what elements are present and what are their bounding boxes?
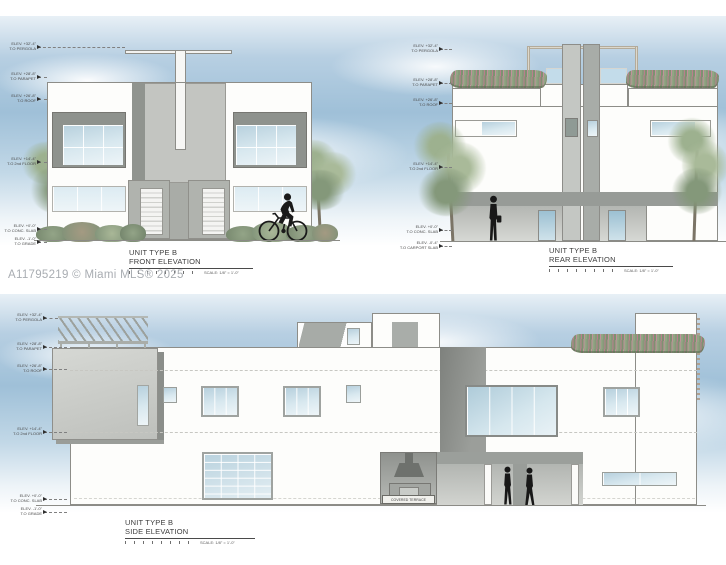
ground-line	[34, 240, 340, 241]
title-rule	[125, 538, 255, 539]
title-block: UNIT TYPE B SIDE ELEVATION SCALE: 1/8" =…	[125, 519, 255, 545]
drawing-title: REAR ELEVATION	[549, 256, 673, 265]
floor-guide-line	[70, 370, 697, 371]
window	[283, 386, 321, 417]
pylon-window	[565, 118, 578, 137]
window-mullions	[236, 125, 296, 165]
person-figure	[486, 195, 502, 243]
window	[603, 387, 640, 417]
ground-line	[36, 505, 706, 506]
leader-line	[44, 432, 67, 433]
marker-text: T.O PERGOLA	[2, 47, 36, 52]
marker-text: T.O 2nd FLOOR	[2, 162, 36, 167]
window-mullions	[204, 454, 271, 498]
elevation-marker: ELEV. +26'-8" T.O ROOF	[398, 98, 438, 108]
tree-foliage	[418, 168, 474, 216]
leader-line	[38, 99, 47, 100]
window-glass	[236, 125, 296, 165]
window	[455, 120, 517, 137]
elevation-marker: ELEV. +0'-0" T.O CONC. SLAB	[6, 494, 42, 504]
window-mullions	[203, 388, 237, 415]
marker-text: T.O 2nd FLOOR	[398, 167, 438, 172]
window-box	[233, 112, 307, 168]
elevation-marker: ELEV. +0'-0" T.O CONC. SLAB	[398, 225, 438, 235]
window-box	[52, 112, 126, 168]
leader-line	[440, 246, 452, 247]
person-figure	[501, 466, 514, 506]
cyclist-figure	[257, 188, 309, 244]
leader-line	[44, 499, 67, 500]
marker-text: T.O ROOF	[6, 369, 42, 374]
scale-ticks	[125, 541, 193, 544]
elevation-marker: ELEV. -1'-0" T.O GRADE	[6, 507, 42, 517]
marker-text: T.O PERGOLA	[6, 318, 42, 323]
elevation-marker: ELEV. +28'-8" T.O PARAPET	[6, 342, 42, 352]
marker-text: T.O ROOF	[398, 103, 438, 108]
glass-railing	[600, 68, 627, 84]
elevation-marker: ELEV. +0'-0" T.O CONC. SLAB	[2, 224, 36, 234]
leader-line	[440, 230, 452, 231]
clerestory-window	[347, 328, 360, 345]
elevation-marker: ELEV. -1'-0" T.O GRADE	[2, 237, 36, 247]
scale-label: SCALE: 1/8" = 1'-0"	[200, 540, 235, 545]
roof-planter-flowers	[626, 70, 719, 88]
entry-door	[538, 210, 556, 241]
pylon-window	[587, 120, 598, 137]
drawing-title: FRONT ELEVATION	[129, 258, 253, 267]
kitchen-hood	[394, 463, 424, 477]
scale-label: SCALE: 1/8" = 1'-0"	[204, 270, 239, 275]
window-mullions	[467, 387, 556, 435]
leader-line	[440, 167, 452, 168]
floor-guide-line	[70, 432, 697, 433]
window	[163, 387, 177, 403]
window-glass	[63, 125, 123, 165]
title-rule	[549, 266, 673, 267]
marker-text: T.O GRADE	[2, 242, 36, 247]
elevation-marker: ELEV. +28'-8" T.O PARAPET	[2, 72, 36, 82]
marker-text: T.O PARAPET	[398, 83, 438, 88]
window-glass	[482, 122, 515, 135]
column	[571, 464, 579, 505]
roof-planter-box	[628, 88, 718, 107]
parapet-cap	[299, 323, 347, 347]
window-mullions	[605, 389, 638, 415]
elevation-marker: ELEV. +32'-4" T.O PERGOLA	[398, 44, 438, 54]
title-block: UNIT TYPE B REAR ELEVATION SCALE: 1/8" =…	[549, 247, 673, 273]
elevation-marker: ELEV. +26'-8" T.O ROOF	[6, 364, 42, 374]
elevation-marker: ELEV. -0'-4" T.O CARPORT SLAB	[398, 241, 438, 251]
stair-pylon	[583, 44, 600, 241]
elevation-marker: ELEV. +14'-4" T.O 2nd FLOOR	[2, 157, 36, 167]
pergola-beam	[58, 341, 148, 344]
marker-text: T.O CONC. SLAB	[2, 229, 36, 234]
leader-line	[440, 83, 452, 84]
drawing-title: SIDE ELEVATION	[125, 528, 255, 537]
person-figure	[523, 467, 536, 507]
marker-text: T.O PARAPET	[6, 347, 42, 352]
sliding-glass-door	[202, 452, 273, 500]
leader-line	[38, 242, 47, 243]
leader-line	[440, 103, 452, 104]
marker-text: T.O PARAPET	[2, 77, 36, 82]
marker-text: T.O CONC. SLAB	[6, 499, 42, 504]
marker-text: T.O 2nd FLOOR	[6, 432, 42, 437]
parapet-cap	[392, 322, 418, 347]
elevation-marker: ELEV. +28'-8" T.O PARAPET	[398, 78, 438, 88]
leader-line	[38, 229, 47, 230]
window	[201, 386, 239, 417]
window-mullions	[63, 125, 123, 165]
marker-text: T.O CONC. SLAB	[398, 230, 438, 235]
marker-text: T.O CARPORT SLAB	[398, 246, 438, 251]
tower-shadow-face	[132, 83, 145, 183]
tree-foliage	[672, 168, 722, 214]
marker-text: T.O GRADE	[6, 512, 42, 517]
architectural-elevation-sheet: ELEV. +32'-4" T.O PERGOLA ELEV. +28'-8" …	[0, 0, 726, 565]
entry-door	[608, 210, 626, 241]
box-shadow-edge	[56, 440, 164, 444]
scale-ticks	[549, 269, 617, 272]
scale-bar: SCALE: 1/8" = 1'-0"	[125, 540, 255, 545]
window	[137, 385, 149, 426]
leader-line	[38, 77, 47, 78]
window	[346, 385, 361, 403]
stair-pylon	[562, 44, 581, 241]
center-pylon-lower	[175, 83, 186, 150]
window	[52, 186, 126, 212]
marker-text: T.O PERGOLA	[398, 49, 438, 54]
roof-planter-flowers	[571, 334, 705, 353]
column	[484, 464, 492, 505]
elevation-marker: ELEV. +32'-4" T.O PERGOLA	[2, 42, 36, 52]
scale-bar: SCALE: 1/8" = 1'-0"	[549, 268, 673, 273]
leader-line	[44, 318, 58, 319]
elevation-marker: ELEV. +32'-4" T.O PERGOLA	[6, 313, 42, 323]
edge-texture	[697, 318, 700, 403]
window-mullions	[285, 388, 319, 415]
marker-text: T.O ROOF	[2, 99, 36, 104]
covered-terrace-label: COVERED TERRACE	[382, 495, 435, 504]
leader-line	[44, 512, 67, 513]
window-low	[602, 472, 677, 486]
elevation-marker: ELEV. +14'-4" T.O 2nd FLOOR	[398, 162, 438, 172]
elevation-marker: ELEV. +14'-4" T.O 2nd FLOOR	[6, 427, 42, 437]
garage-door	[202, 188, 225, 235]
pergola-beam	[58, 316, 148, 318]
scale-label: SCALE: 1/8" = 1'-0"	[624, 268, 659, 273]
leader-line	[38, 47, 125, 48]
roof-planter-flowers	[450, 70, 547, 88]
leader-line	[38, 162, 47, 163]
elevation-marker: ELEV. +26'-8" T.O ROOF	[2, 94, 36, 104]
pergola-slats	[58, 317, 148, 343]
window-mullions	[603, 473, 676, 485]
leader-line	[440, 49, 452, 50]
leader-line	[44, 369, 67, 370]
window-mullions	[53, 187, 125, 211]
window-large	[465, 385, 558, 437]
leader-line	[44, 347, 67, 348]
roof-planter-box	[452, 88, 546, 107]
mls-watermark: A11795219 © Miami MLS® 2025	[8, 269, 184, 281]
ground-line	[440, 241, 726, 242]
